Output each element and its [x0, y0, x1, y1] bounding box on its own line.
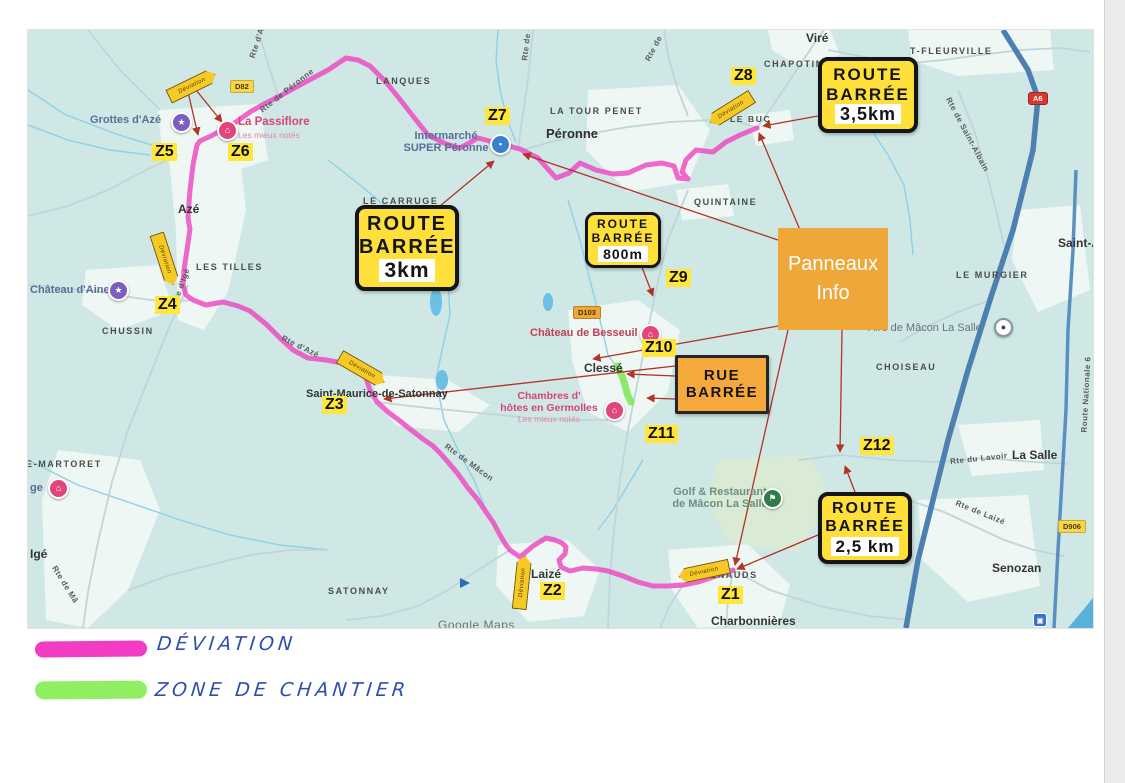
town-label-ige: Igé — [30, 547, 47, 561]
star-glyph: ★ — [177, 118, 185, 127]
zone-label-z9: Z9 — [666, 269, 691, 287]
legend-deviation-swatch — [35, 640, 147, 657]
zone-label-z7: Z7 — [485, 107, 510, 125]
house-glyph: ⌂ — [648, 330, 653, 339]
zone-label-z11: Z11 — [645, 425, 678, 443]
germolles-sub: Les mieux notés — [496, 414, 602, 424]
zone-label-z2: Z2 — [540, 582, 565, 600]
germolles-line2: hôtes en Germolles — [496, 402, 602, 414]
poi-label-besseuil: Château de Besseuil — [530, 327, 638, 339]
house-glyph: ⌂ — [612, 406, 617, 415]
town-label-quintaine: QUINTAINE — [694, 197, 757, 207]
poi-label-ge: ge — [30, 482, 43, 494]
poi-label-chateau-aine: Château d'Aine — [30, 284, 110, 296]
sign-distance: 3km — [379, 259, 434, 282]
sign-line: ROUTE — [588, 218, 658, 232]
lodging-ige-icon: ⌂ — [48, 478, 69, 499]
intermarche-line2: SUPER Péronne — [400, 142, 492, 154]
rue-barree-sign: RUE BARRÉE — [675, 355, 769, 414]
golf-line2: de Mâcon La Salle — [666, 498, 774, 510]
a6-badge: A6 — [1028, 92, 1048, 105]
lodging-germolles-icon: ⌂ — [604, 400, 625, 421]
google-maps-watermark: Google Maps — [438, 618, 515, 628]
intermarche-line1: Intermarché — [400, 130, 492, 142]
town-label-la-salle: La Salle — [1012, 448, 1057, 462]
zone-label-z12: Z12 — [860, 437, 894, 455]
poi-label-passiflore: La Passiflore — [238, 116, 310, 128]
house-glyph: ⌂ — [56, 484, 61, 493]
d82-badge: D82 — [230, 80, 254, 93]
sign-line: BARRÉE — [359, 236, 455, 259]
d906-badge: D906 — [1058, 520, 1086, 533]
poi-label-grottes-daze: Grottes d'Azé — [90, 114, 161, 126]
town-label-clesse: Clessé — [584, 361, 623, 375]
sign-distance: 800m — [598, 246, 648, 262]
map-canvas: Viré CHAPOTIN T-FLEURVILLE LANQUES LA TO… — [28, 30, 1093, 628]
panneaux-info-box: Panneaux Info — [778, 228, 888, 330]
town-label-chussin: CHUSSIN — [102, 326, 154, 336]
train-station-icon: ▣ — [1033, 613, 1047, 627]
town-label-senozan: Senozan — [992, 561, 1041, 575]
golf-line1: Golf & Restaurant — [666, 486, 774, 498]
zone-label-z10: Z10 — [642, 339, 676, 357]
town-label-saint-a: Saint-A — [1058, 236, 1093, 250]
town-label-les-tilles: LES TILLES — [196, 262, 263, 272]
sign-distance: 3,5km — [835, 104, 901, 124]
legend-chantier-swatch — [35, 681, 147, 700]
lodging-passiflore-icon: ⌂ — [217, 120, 238, 141]
bag-glyph: ▪ — [499, 140, 502, 149]
town-label-e-martoret: E-MARTORET — [28, 459, 102, 469]
sign-line: RUE — [678, 367, 766, 384]
poi-label-germolles: Chambres d' hôtes en Germolles Les mieux… — [496, 390, 602, 424]
town-label-peronne: Péronne — [546, 126, 598, 141]
town-label-charbonnieres: Charbonnières — [711, 614, 796, 628]
zone-label-z3: Z3 — [322, 396, 347, 414]
legend-chantier-label: ZONE DE CHANTIER — [154, 679, 410, 701]
zone-label-z5: Z5 — [152, 143, 177, 161]
scanned-detour-map-page: Viré CHAPOTIN T-FLEURVILLE LANQUES LA TO… — [0, 0, 1125, 783]
town-label-le-murgier: LE MURGIER — [956, 270, 1029, 280]
dot-glyph: ● — [1001, 323, 1006, 332]
town-label-satonnay: SATONNAY — [328, 586, 390, 596]
town-label-chapotin: CHAPOTIN — [764, 59, 824, 69]
house-glyph: ⌂ — [225, 126, 230, 135]
sign-line: BARRÉE — [822, 518, 908, 536]
flag-glyph: ⚑ — [768, 494, 776, 503]
town-label-fleurville: T-FLEURVILLE — [910, 46, 993, 56]
d103-badge: D103 — [573, 306, 601, 319]
town-label-aze: Azé — [178, 202, 199, 216]
panneaux-line2: Info — [778, 282, 888, 305]
station-glyph: ▣ — [1036, 616, 1044, 625]
town-label-la-tour-penet: LA TOUR PENET — [550, 106, 643, 116]
germolles-line1: Chambres d' — [496, 390, 602, 402]
poi-sub-passiflore: Les mieux notés — [238, 130, 300, 140]
castle-attraction-icon: ★ — [108, 280, 129, 301]
sign-line: ROUTE — [822, 65, 914, 85]
poi-label-golf: Golf & Restaurant de Mâcon La Salle — [666, 486, 774, 510]
panneaux-line1: Panneaux — [778, 253, 888, 276]
route-barree-25km-sign: ROUTE BARRÉE 2,5 km — [818, 492, 912, 564]
route-barree-3km-sign: ROUTE BARRÉE 3km — [355, 205, 459, 291]
town-label-choiseau: CHOISEAU — [876, 362, 936, 372]
sign-distance: 2,5 km — [831, 537, 900, 556]
sign-line: BARRÉE — [678, 384, 766, 401]
town-label-le-buc: LE BUC — [730, 114, 771, 124]
sign-line: ROUTE — [822, 500, 908, 518]
rest-area-icon: ● — [994, 318, 1013, 337]
scan-page-edge — [1104, 0, 1125, 783]
sign-line: ROUTE — [359, 213, 455, 236]
town-label-laize: Laizé — [531, 567, 561, 581]
legend-deviation-label: DÉVIATION — [156, 633, 298, 655]
route-barree-35km-sign: ROUTE BARRÉE 3,5km — [818, 57, 918, 133]
poi-label-intermarche: Intermarché SUPER Péronne — [400, 130, 492, 154]
zone-label-z8: Z8 — [731, 67, 756, 85]
sign-line: BARRÉE — [588, 232, 658, 246]
route-barree-800m-sign: ROUTE BARRÉE 800m — [585, 212, 661, 268]
caves-attraction-icon: ★ — [171, 112, 192, 133]
zone-label-z4: Z4 — [155, 296, 180, 314]
golf-icon: ⚑ — [762, 488, 783, 509]
sign-line: BARRÉE — [822, 85, 914, 105]
town-label-vire: Viré — [806, 31, 828, 45]
star-glyph: ★ — [114, 286, 122, 295]
town-label-lanques: LANQUES — [376, 76, 431, 86]
supermarket-icon: ▪ — [490, 134, 511, 155]
zone-label-z1: Z1 — [718, 586, 743, 604]
zone-label-z6: Z6 — [228, 143, 253, 161]
